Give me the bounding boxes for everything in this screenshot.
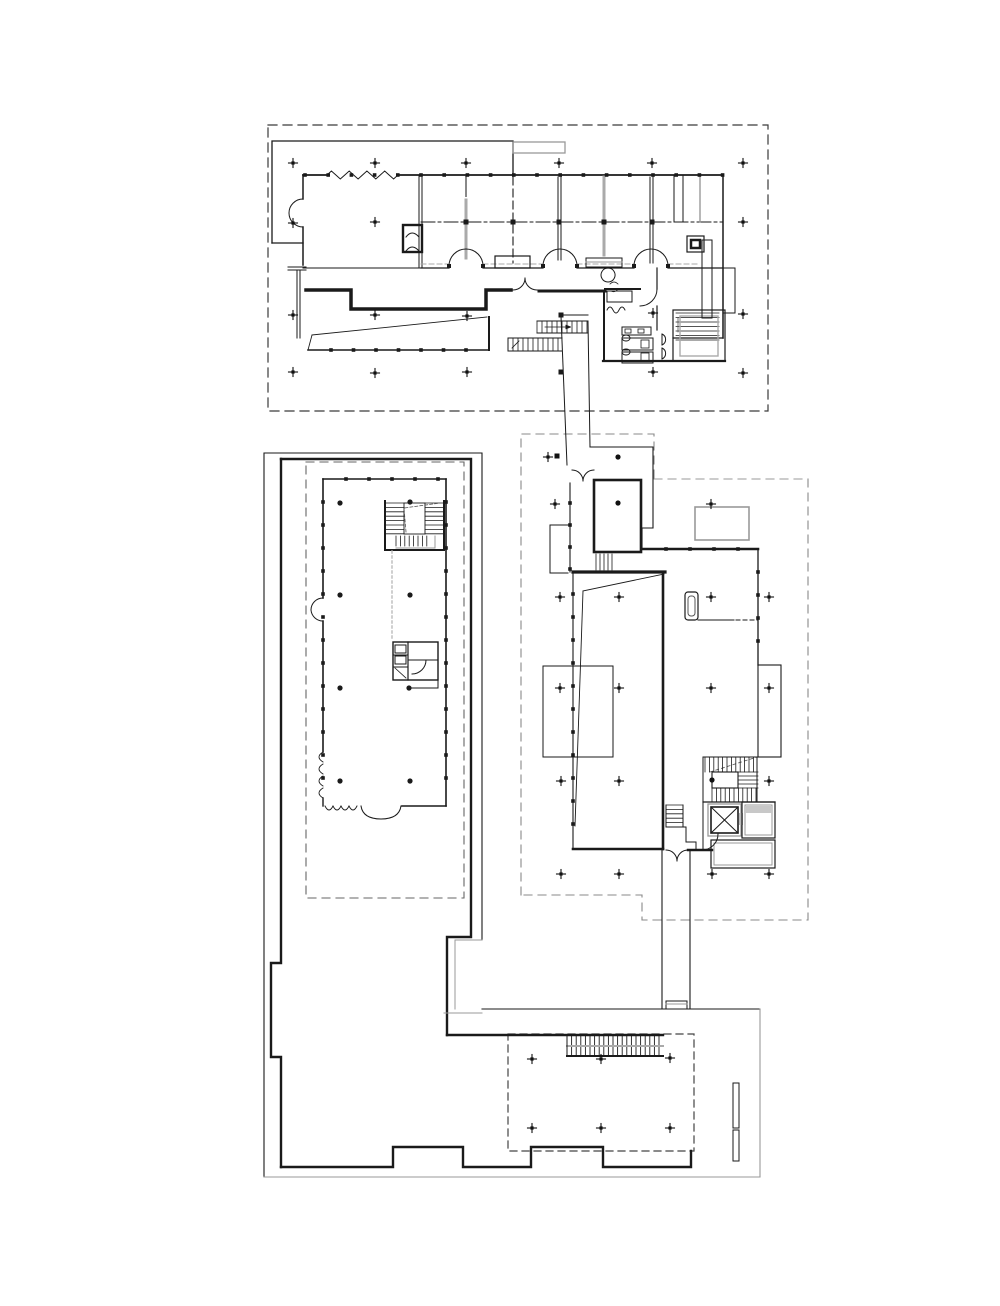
floor-plan-svg [0,0,1000,1306]
plan-left [264,453,691,1177]
floor-plan-page [0,0,1000,1306]
site-boundary-right-plan [521,434,808,920]
site-boundary-bottom-block [508,1034,694,1151]
plan-right [543,447,781,1009]
column-grid-marks [289,159,774,1133]
plan-top [272,141,735,465]
